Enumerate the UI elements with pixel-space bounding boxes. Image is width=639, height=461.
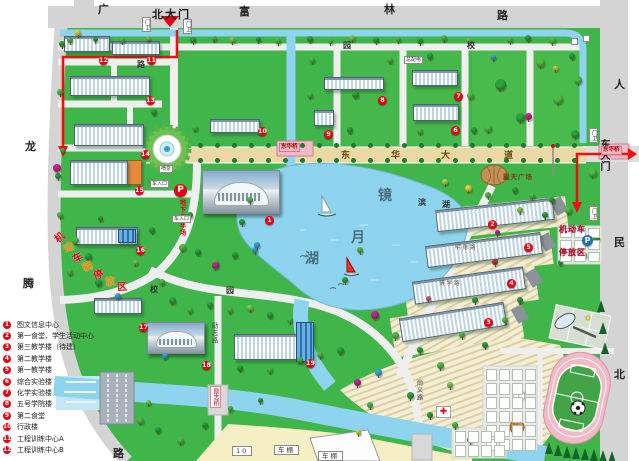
volleyball-icon xyxy=(513,390,525,402)
campus-map: 北大门 东大门 露天广场 P 地下停车场 机动车 P 停放区 ✚ 1图文信息中心… xyxy=(0,0,639,461)
parking-lot-pad2 xyxy=(452,428,506,458)
east-margin xyxy=(628,0,639,461)
lizhi-bridge xyxy=(208,385,228,415)
fountain-roundabout xyxy=(145,127,189,171)
plaza-dome xyxy=(481,165,507,185)
road-fulin xyxy=(48,6,639,28)
donghua-boulevard xyxy=(146,147,586,163)
donghua-bridge xyxy=(277,141,313,156)
map-base xyxy=(0,0,639,461)
motor-parking-pad xyxy=(558,226,602,264)
soccer-ball-icon xyxy=(571,401,585,415)
east-bridge xyxy=(599,144,629,159)
road-stub xyxy=(74,0,94,8)
shangyi-bridge xyxy=(412,434,432,460)
basketball-icon xyxy=(510,420,524,434)
